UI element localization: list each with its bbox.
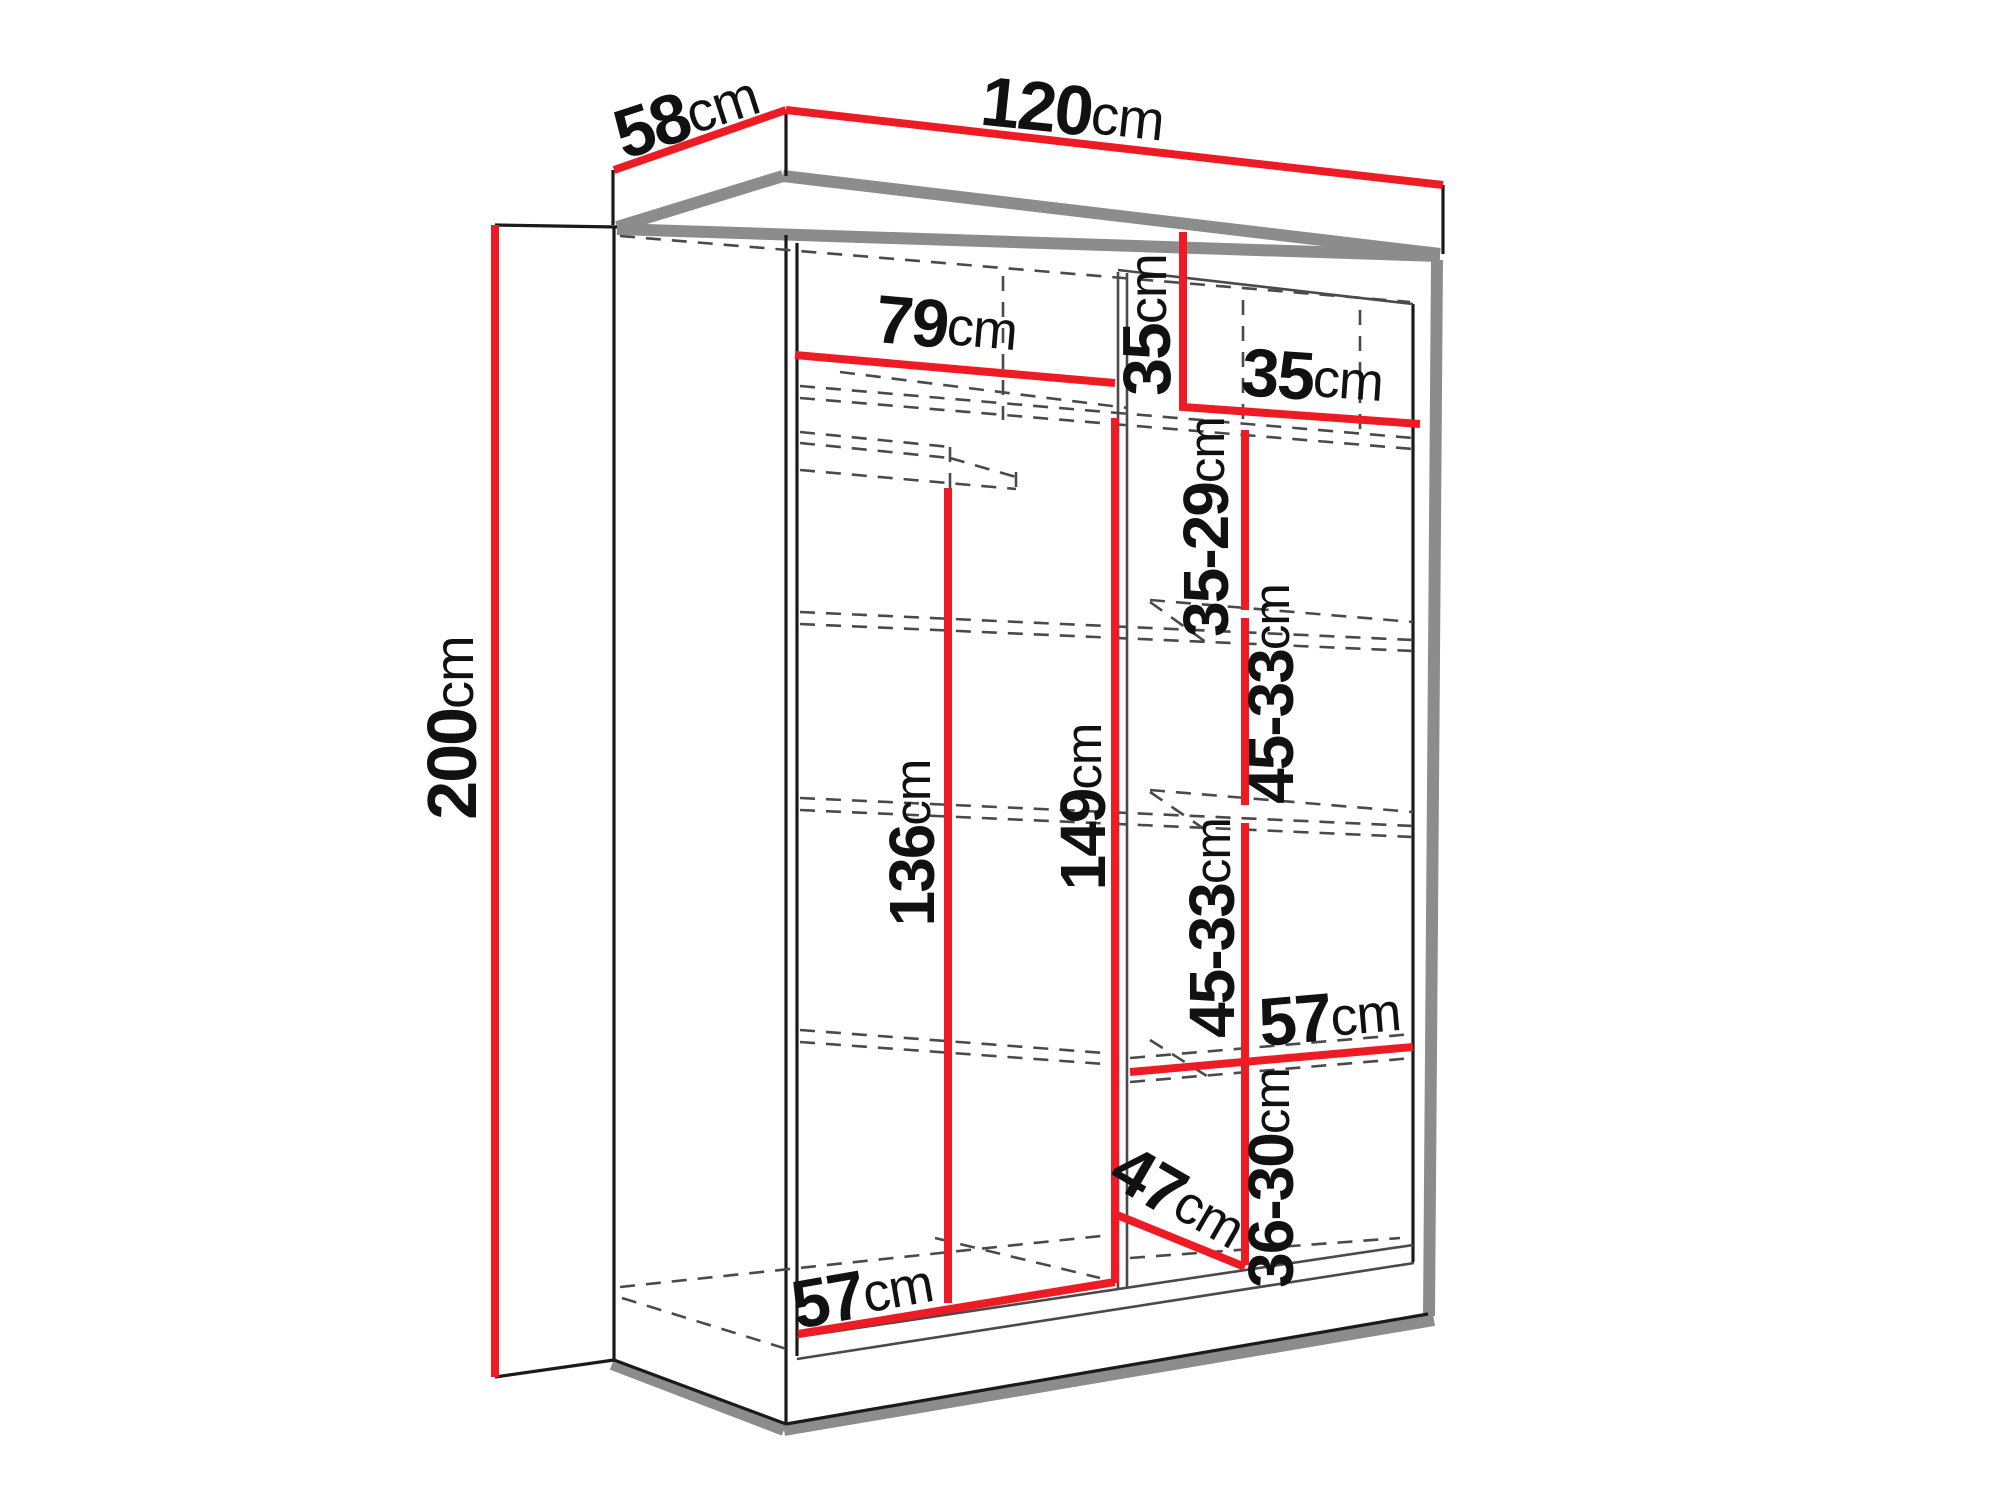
floor-side-dashed-left bbox=[622, 1298, 790, 1350]
label-width-top: 120cm bbox=[977, 62, 1168, 159]
right-outer-shadow bbox=[1429, 260, 1437, 1316]
wardrobe-dimension-diagram: 200cm 58cm 120cm 79cm 35cm 35cm 35-29cm … bbox=[0, 0, 2000, 1500]
label-depth-top: 58cm bbox=[605, 55, 768, 174]
bottom-left-shadow bbox=[612, 1364, 784, 1430]
bottom-front-edge bbox=[786, 1314, 1428, 1424]
shelf2-bottom-dashed bbox=[800, 624, 1413, 651]
dim-connector-200-bottom bbox=[495, 1360, 614, 1377]
label-height-total: 200cm bbox=[413, 636, 491, 819]
hanging-rod-dashed-4 bbox=[950, 458, 1016, 477]
label-left-section-height: 149cm bbox=[1047, 724, 1119, 891]
shelf4-left-dashed-1 bbox=[800, 1030, 1118, 1054]
label-shelf-gap-2: 45-33cm bbox=[1235, 584, 1307, 804]
label-left-section-width: 79cm bbox=[873, 281, 1021, 369]
label-shelf-gap-3: 45-33cm bbox=[1176, 818, 1248, 1038]
shelf2-front-dashed bbox=[800, 612, 1413, 640]
label-shelf-gap-1: 35-29cm bbox=[1170, 417, 1242, 637]
label-hanging-space-height: 136cm bbox=[876, 760, 948, 927]
left-panel-bottom-edge bbox=[614, 1360, 786, 1424]
label-bottom-shelf-width: 57cm bbox=[786, 1244, 939, 1343]
dim-connector-200-top bbox=[495, 225, 617, 227]
top-slab-left-edge bbox=[617, 176, 783, 227]
hanging-rod-dashed-1 bbox=[800, 432, 950, 447]
dim-line-79 bbox=[795, 355, 1115, 383]
bottom-front-shadow bbox=[784, 1320, 1434, 1430]
hanging-rod-dashed-3 bbox=[800, 470, 1016, 489]
label-shelf-gap-4: 36-30cm bbox=[1235, 1068, 1307, 1288]
shelf4-left-dashed-2 bbox=[800, 1042, 1118, 1065]
hanging-rod-dashed-2 bbox=[800, 443, 950, 458]
label-top-shelf-width: 35cm bbox=[1239, 334, 1386, 420]
label-top-compartment-height: 35cm bbox=[1109, 254, 1185, 396]
